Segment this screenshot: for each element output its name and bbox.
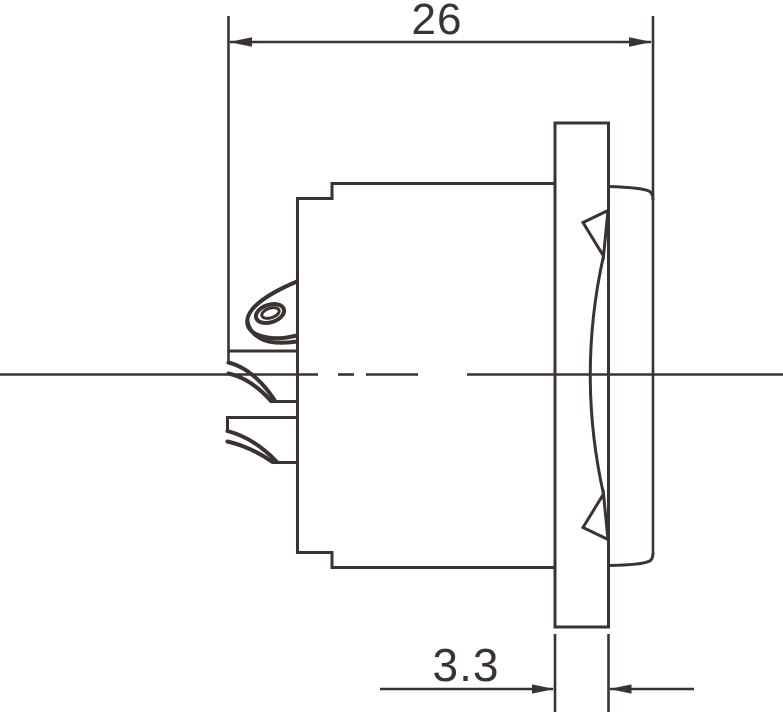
rear-bottom-edge xyxy=(608,553,653,566)
body-top-edge xyxy=(298,184,557,199)
dimension-overall-depth: 26 xyxy=(229,0,654,554)
dimension-label-panel-thickness: 3.3 xyxy=(433,639,500,691)
solder-lug xyxy=(247,282,297,343)
latch-finger-upper xyxy=(229,351,298,402)
connector-side-view-drawing: 26 3.3 xyxy=(0,0,783,712)
arrowhead-right-icon xyxy=(629,37,652,47)
spring-tab-lower xyxy=(583,494,608,540)
arrowhead-left-pointing-icon xyxy=(609,684,632,693)
spring-tab-upper xyxy=(583,211,608,257)
arrowhead-right-pointing-icon xyxy=(532,684,555,693)
dimension-panel-thickness: 3.3 xyxy=(380,634,694,712)
latch-finger-lower xyxy=(228,416,298,463)
body-bottom-edge xyxy=(298,553,557,568)
technical-drawing-canvas: 26 3.3 xyxy=(0,0,783,712)
rear-top-edge xyxy=(608,187,653,201)
lug-outline xyxy=(247,282,297,339)
arrowhead-left-icon xyxy=(229,37,252,47)
dimension-label-overall-depth: 26 xyxy=(412,0,463,44)
